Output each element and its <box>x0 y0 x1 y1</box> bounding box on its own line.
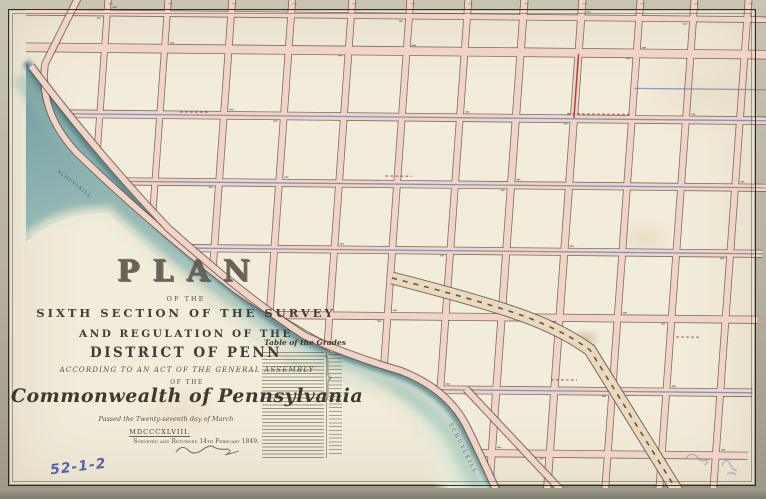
survey-line: SIXTH SECTION OF THE SURVEY <box>36 306 335 320</box>
surveyor-signature <box>176 446 239 455</box>
bottom-mat-strip <box>0 488 766 499</box>
grades-table: Table of the Grades } <box>262 338 348 462</box>
grades-table-brace: } <box>322 348 334 406</box>
grades-table-rows <box>262 352 324 460</box>
of-the-line-1: OF THE <box>167 295 206 303</box>
district-line: DISTRICT OF PENN <box>90 345 282 361</box>
grades-table-heading: Table of the Grades <box>264 338 346 347</box>
street-grid <box>0 0 766 499</box>
scanned-map: SCHUYLKILL SCHUYLKILL PLAN OF THE SIXTH … <box>0 0 766 499</box>
regulation-line: AND REGULATION OF THE <box>79 328 293 340</box>
passed-line: Passed the Twenty-seventh day of March <box>99 415 234 423</box>
surveyed-line: Surveyed and Returned 14th February 1849… <box>133 438 259 445</box>
map-drawing: SCHUYLKILL SCHUYLKILL <box>0 0 766 499</box>
margin-tick-marks <box>108 3 753 4</box>
plan-title: PLAN <box>117 254 263 289</box>
pencil-scribble-2 <box>722 460 737 475</box>
year-line: MDCCCXLVIII. <box>129 428 190 437</box>
